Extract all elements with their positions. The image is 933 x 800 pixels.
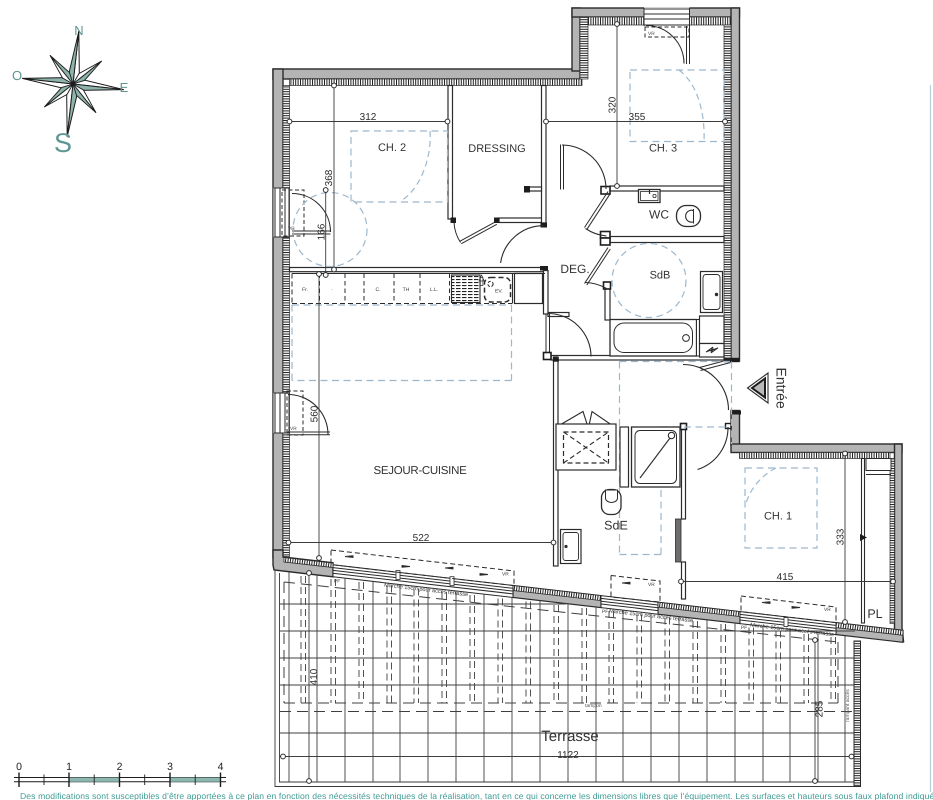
svg-text:CH. 1: CH. 1 [764, 511, 792, 523]
svg-text:SdB: SdB [650, 270, 671, 282]
svg-text:DEG.: DEG. [560, 262, 589, 276]
svg-text:415: 415 [777, 572, 794, 583]
svg-text:560: 560 [309, 405, 320, 422]
svg-text:VR: VR [290, 426, 297, 432]
svg-text:1122: 1122 [557, 750, 579, 761]
svg-text:TH: TH [403, 287, 410, 293]
svg-text:VR: VR [648, 31, 655, 37]
svg-text:Terrasse: Terrasse [541, 728, 599, 745]
svg-text:312: 312 [360, 112, 377, 123]
svg-text:320: 320 [608, 96, 619, 113]
svg-text:355: 355 [629, 112, 646, 123]
svg-text:PL: PL [867, 607, 882, 621]
svg-text:DRESSING: DRESSING [468, 143, 525, 155]
svg-text:4: 4 [218, 761, 224, 773]
svg-text:368: 368 [324, 169, 335, 186]
svg-text:CH. 2: CH. 2 [378, 142, 406, 154]
svg-text:Fr.: Fr. [302, 287, 308, 293]
svg-text:E: E [120, 80, 129, 95]
svg-text:Des modifications sont suscept: Des modifications sont susceptibles d’êt… [20, 791, 933, 800]
svg-text:SEJOUR-CUISINE: SEJOUR-CUISINE [374, 465, 468, 477]
svg-text:1: 1 [66, 761, 72, 773]
svg-text:SdE: SdE [604, 519, 628, 533]
svg-text:WC: WC [649, 208, 669, 222]
svg-text:Entrée: Entrée [774, 368, 790, 409]
svg-text:PF: PF [334, 579, 340, 585]
svg-text:N: N [74, 23, 83, 38]
svg-text:410: 410 [309, 668, 320, 685]
svg-text:rampant accès: rampant accès [845, 689, 851, 722]
svg-text:0: 0 [16, 761, 22, 773]
svg-text:CH. 3: CH. 3 [649, 143, 677, 155]
svg-text:tampon: tampon [585, 703, 602, 709]
svg-text:EV.: EV. [495, 289, 503, 295]
svg-text:285: 285 [815, 700, 826, 717]
svg-text:166: 166 [317, 223, 328, 240]
svg-text:S: S [54, 128, 72, 158]
svg-text:PF: PF [741, 625, 747, 631]
svg-text:C.: C. [376, 287, 381, 293]
svg-text:·: · [331, 287, 333, 293]
svg-text:O: O [12, 68, 22, 83]
svg-text:PF: PF [602, 609, 608, 615]
svg-text:VR: VR [824, 607, 831, 613]
svg-text:2: 2 [117, 761, 123, 773]
svg-text:L.L.: L.L. [430, 287, 438, 293]
svg-text:3: 3 [167, 761, 173, 773]
svg-text:VR: VR [648, 582, 655, 588]
svg-text:VR: VR [502, 572, 509, 578]
svg-text:522: 522 [413, 533, 430, 544]
svg-text:333: 333 [835, 528, 846, 545]
